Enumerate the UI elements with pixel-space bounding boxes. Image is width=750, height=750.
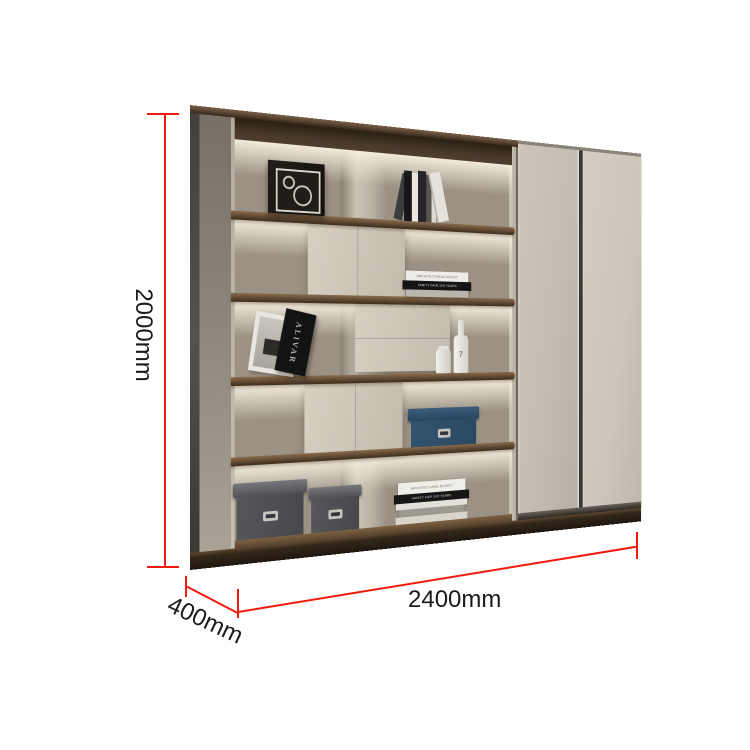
depth-dimension-tick-right — [237, 589, 239, 618]
cabinet-left-side-panel — [199, 106, 231, 569]
ornament-dial — [293, 185, 312, 207]
decor-book-row-top — [393, 166, 465, 225]
decor-white-bottle: 7 — [454, 335, 469, 373]
height-dimension-tick-bottom — [147, 566, 179, 568]
sliding-door-left — [518, 144, 579, 520]
label-plate — [438, 428, 451, 437]
label-plate — [263, 511, 278, 522]
depth-dimension-tick-left — [185, 576, 187, 597]
closed-cabinet-module-row2 — [308, 224, 405, 297]
height-dimension-tick-top — [147, 113, 179, 115]
label-plate — [328, 509, 342, 520]
decor-ornament-box — [268, 160, 325, 216]
book-spine — [404, 170, 412, 221]
book-spine — [418, 171, 426, 222]
width-dimension-tick-right — [636, 532, 638, 559]
decor-art-frames: ALIVAR — [247, 306, 317, 377]
decor-navy-storage-box — [411, 419, 476, 448]
decor-stacked-books-shelf2: ARCHITECTURAL DIGEST VANITY FAIR 100 YEA… — [403, 270, 472, 298]
depth-dimension-label: 400mm — [156, 590, 253, 652]
cabinet-left-side-edge — [190, 105, 199, 570]
ornament-inner-panel — [276, 168, 321, 214]
decor-white-jar — [436, 349, 451, 373]
stacked-book-grey — [406, 289, 469, 298]
product-dimension-image: 2000mm 400mm 2400mm — [0, 0, 750, 750]
bookshelf-cabinet: ARCHITECTURAL DIGEST VANITY FAIR 100 YEA… — [190, 105, 641, 570]
height-dimension-line — [164, 114, 166, 568]
ornament-dial-small — [283, 175, 295, 189]
width-dimension-label: 2400mm — [408, 588, 501, 612]
closed-cabinet-module-row4 — [304, 382, 402, 453]
decor-grey-storage-box-large — [237, 492, 304, 540]
door-seam — [355, 383, 357, 450]
drawer-seam — [355, 338, 450, 340]
sliding-door-right — [583, 151, 642, 514]
decor-grey-storage-box-small — [311, 496, 359, 534]
height-dimension-label: 2000mm — [131, 288, 155, 382]
door-seam — [358, 226, 360, 295]
